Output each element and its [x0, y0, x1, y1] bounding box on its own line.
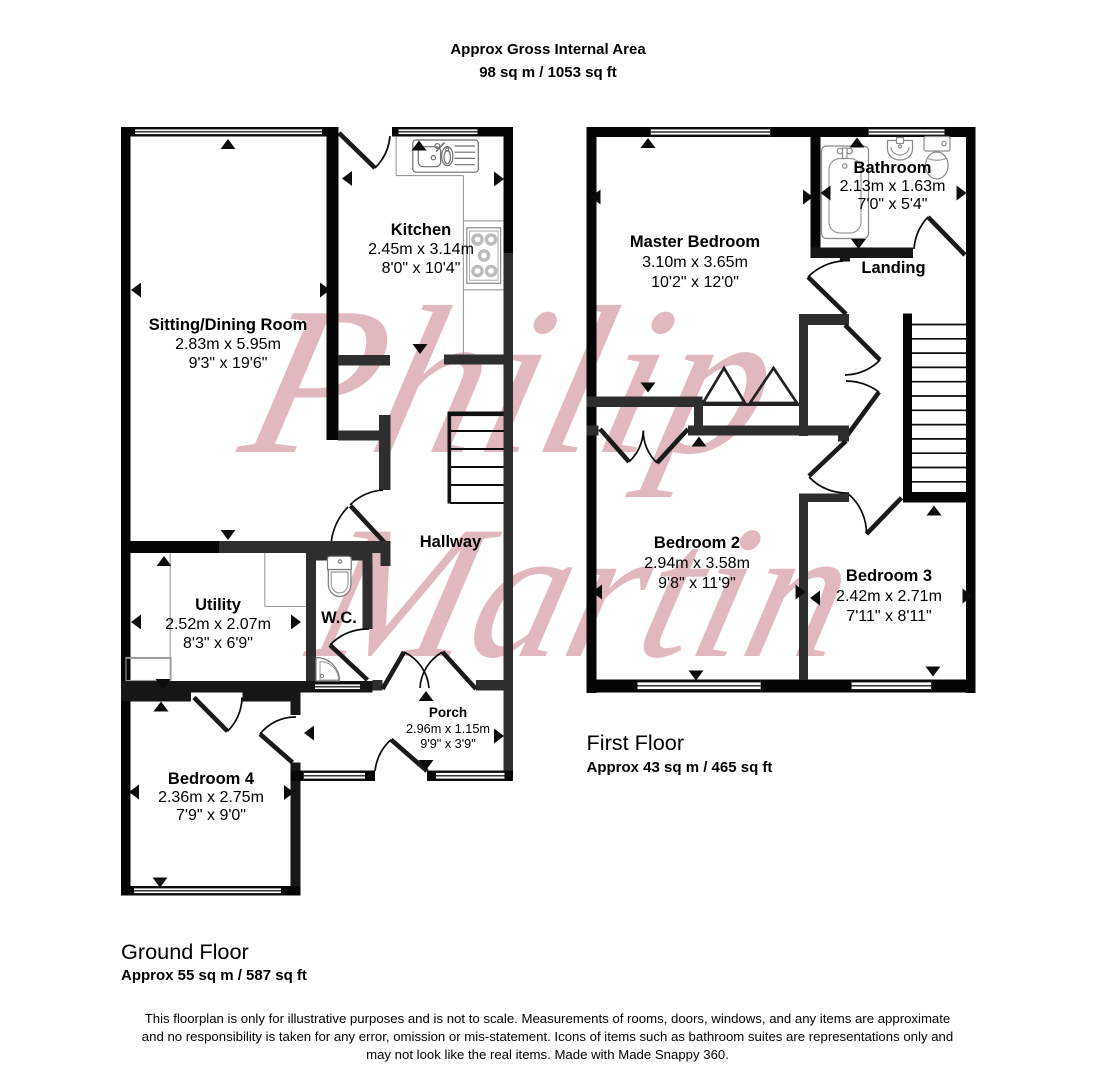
svg-text:7'9" x 9'0": 7'9" x 9'0": [176, 807, 246, 824]
svg-text:7'11" x 8'11": 7'11" x 8'11": [846, 608, 931, 625]
svg-text:8'0" x 10'4": 8'0" x 10'4": [382, 260, 461, 277]
svg-text:3.10m x 3.65m: 3.10m x 3.65m: [642, 254, 748, 271]
svg-text:2.36m x 2.75m: 2.36m x 2.75m: [158, 789, 264, 806]
svg-text:9'9" x 3'9": 9'9" x 3'9": [420, 737, 475, 751]
svg-text:2.52m x 2.07m: 2.52m x 2.07m: [165, 616, 271, 633]
svg-text:Approx 43 sq m / 465 sq ft: Approx 43 sq m / 465 sq ft: [587, 759, 773, 776]
svg-text:Bedroom 4: Bedroom 4: [168, 770, 255, 788]
svg-text:9'3" x 19'6": 9'3" x 19'6": [189, 355, 268, 372]
svg-text:Approx 55 sq m / 587 sq ft: Approx 55 sq m / 587 sq ft: [121, 967, 307, 984]
svg-text:This floorplan is only for ill: This floorplan is only for illustrative …: [145, 1011, 951, 1026]
svg-text:Porch: Porch: [429, 705, 467, 720]
svg-text:and no responsibility is taken: and no responsibility is taken for any e…: [142, 1029, 953, 1044]
svg-text:Hallway: Hallway: [420, 533, 482, 551]
svg-text:2.45m x 3.14m: 2.45m x 3.14m: [368, 241, 474, 258]
svg-text:Ground Floor: Ground Floor: [121, 939, 249, 964]
svg-text:7'0" x 5'4": 7'0" x 5'4": [858, 196, 928, 213]
svg-text:9'8" x 11'9": 9'8" x 11'9": [658, 575, 736, 592]
svg-text:W.C.: W.C.: [321, 609, 357, 627]
svg-text:2.83m x 5.95m: 2.83m x 5.95m: [175, 336, 281, 353]
svg-text:Approx Gross Internal Area: Approx Gross Internal Area: [450, 41, 646, 58]
svg-text:Landing: Landing: [861, 259, 925, 277]
svg-text:Master Bedroom: Master Bedroom: [630, 233, 760, 251]
svg-text:Sitting/Dining Room: Sitting/Dining Room: [149, 316, 308, 334]
svg-text:10'2" x 12'0": 10'2" x 12'0": [651, 274, 739, 291]
svg-text:98 sq m / 1053 sq ft: 98 sq m / 1053 sq ft: [479, 64, 617, 81]
svg-text:Martin: Martin: [291, 487, 874, 698]
svg-text:Bedroom 2: Bedroom 2: [654, 534, 740, 552]
svg-text:Bathroom: Bathroom: [854, 159, 932, 177]
svg-text:2.94m x 3.58m: 2.94m x 3.58m: [644, 555, 750, 572]
svg-text:8'3" x 6'9": 8'3" x 6'9": [183, 635, 253, 652]
svg-text:may not look like the real ite: may not look like the real items. Made w…: [366, 1047, 729, 1062]
svg-text:Kitchen: Kitchen: [391, 221, 452, 239]
svg-text:2.96m x 1.15m: 2.96m x 1.15m: [406, 722, 490, 736]
svg-text:Utility: Utility: [195, 596, 242, 614]
svg-text:2.42m x 2.71m: 2.42m x 2.71m: [836, 588, 942, 605]
svg-text:First Floor: First Floor: [587, 730, 685, 755]
svg-text:Bedroom 3: Bedroom 3: [846, 567, 932, 585]
svg-text:2.13m x 1.63m: 2.13m x 1.63m: [840, 178, 946, 195]
